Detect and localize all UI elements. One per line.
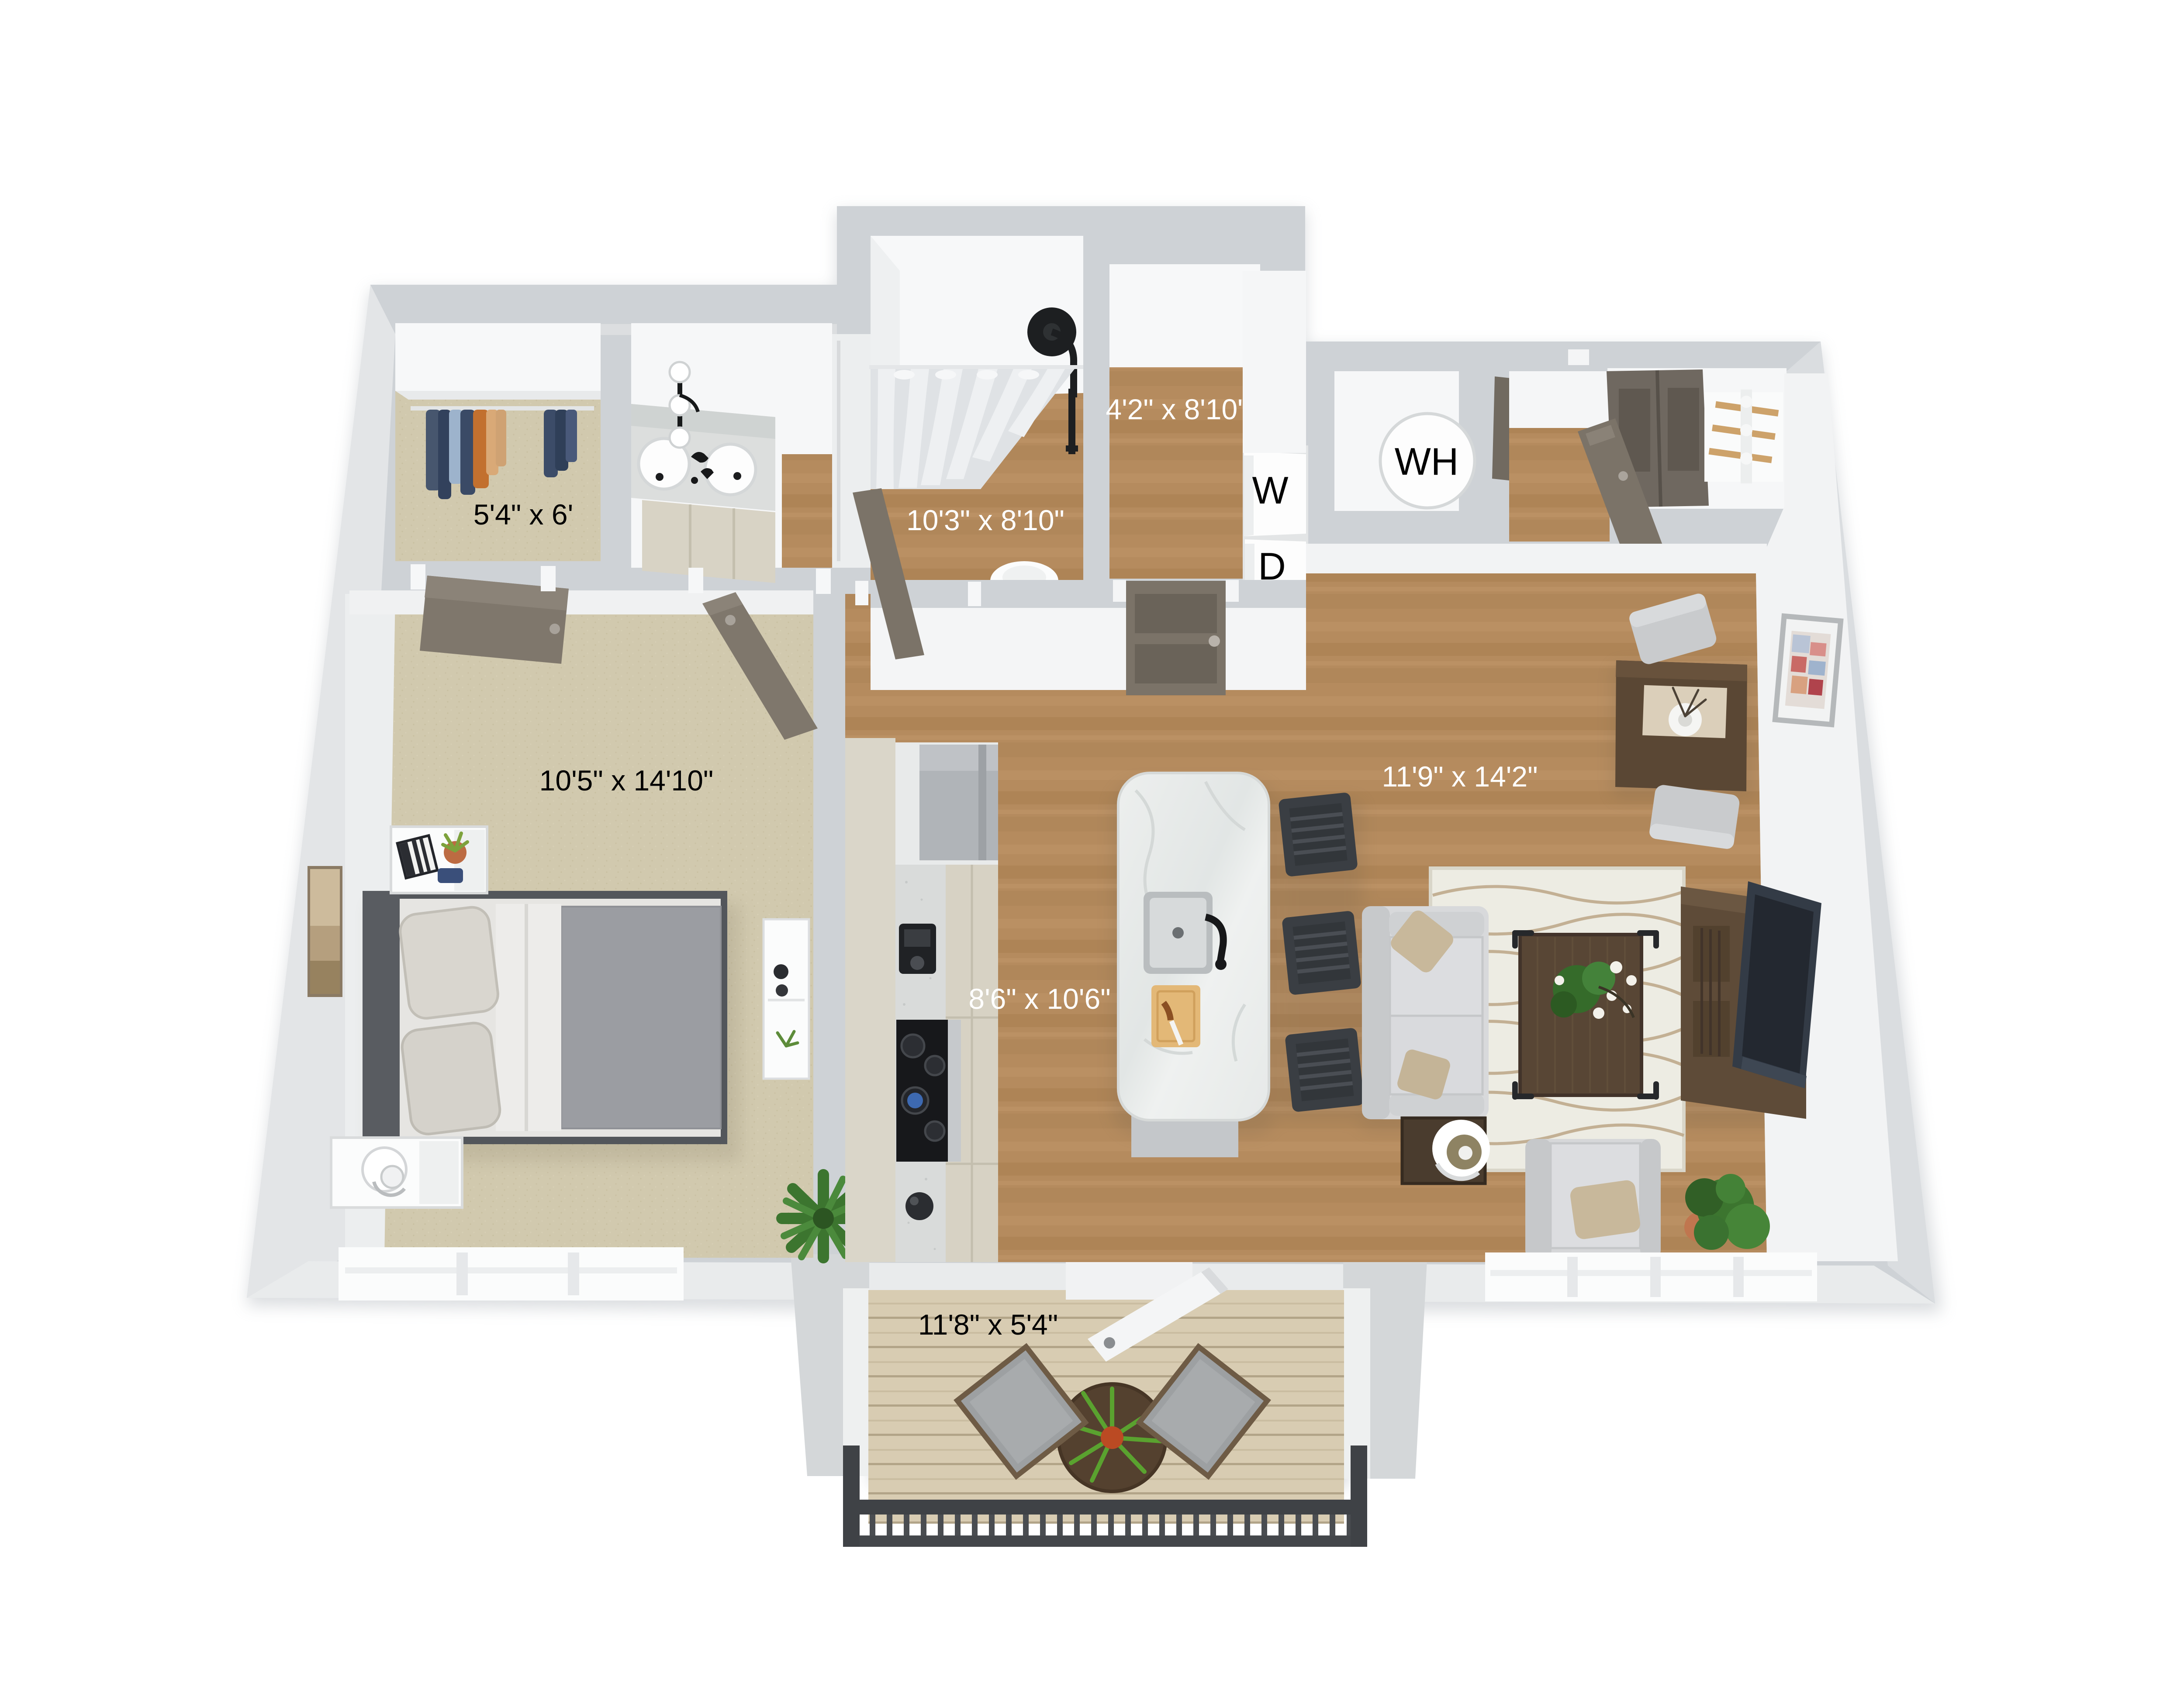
svg-text:8'6" x 10'6": 8'6" x 10'6"	[968, 983, 1110, 1015]
svg-text:10'3" x 8'10": 10'3" x 8'10"	[906, 504, 1064, 536]
svg-text:10'5" x 14'10": 10'5" x 14'10"	[539, 764, 714, 797]
svg-text:WH: WH	[1395, 440, 1459, 483]
svg-text:5'4" x 6': 5'4" x 6'	[473, 498, 573, 531]
svg-text:W: W	[1252, 469, 1288, 512]
svg-text:4'2" x 8'10": 4'2" x 8'10"	[1106, 393, 1248, 425]
svg-text:11'8" x 5'4": 11'8" x 5'4"	[918, 1308, 1058, 1341]
svg-text:11'9" x 14'2": 11'9" x 14'2"	[1382, 760, 1538, 793]
